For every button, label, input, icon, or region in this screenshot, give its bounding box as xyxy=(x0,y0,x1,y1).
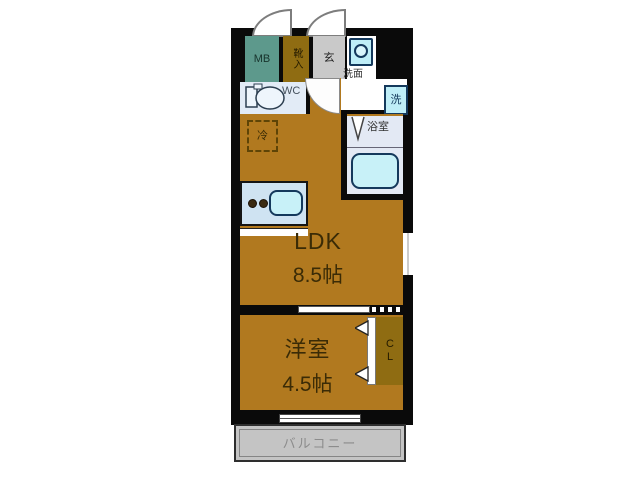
meter-box: MB xyxy=(245,36,279,82)
kitchen-sink-icon xyxy=(269,190,303,216)
balcony-window xyxy=(279,414,361,423)
closet-label: CL xyxy=(384,338,395,364)
shoe-cabinet-label: 靴入 xyxy=(291,48,301,70)
bathroom-label: 浴室 xyxy=(367,122,389,133)
washbasin-icon xyxy=(349,38,373,66)
washroom-label: 洗面 xyxy=(343,70,363,80)
stove-burner-icon xyxy=(248,199,257,208)
bedroom-name: 洋室 xyxy=(250,332,365,364)
closet: CL xyxy=(376,317,403,385)
ldk-name: LDK xyxy=(258,228,378,255)
shoe-cabinet: 靴入 xyxy=(283,36,309,82)
floorplan: MB 靴入 玄 洗面 洗 WC 冷 LDK 8.5帖 xyxy=(0,0,640,480)
wc-label: WC xyxy=(282,86,300,97)
washing-machine-icon: 洗 xyxy=(384,85,408,115)
meter-box-door-swing-icon xyxy=(252,9,292,37)
entrance-label: 玄 xyxy=(324,53,335,64)
bedroom-size: 4.5帖 xyxy=(250,368,365,398)
refrigerator-label: 冷 xyxy=(257,131,268,142)
entrance-door-swing-icon xyxy=(306,9,346,37)
ldk-window xyxy=(403,233,413,275)
closet-door-arrow-icon xyxy=(355,320,369,336)
ldk-size: 8.5帖 xyxy=(258,259,378,289)
balcony: バルコニー xyxy=(234,424,406,462)
bathtub-icon xyxy=(351,153,399,189)
refrigerator-space: 冷 xyxy=(247,120,278,152)
balcony-label: バルコニー xyxy=(283,437,358,450)
ldk-label: LDK 8.5帖 xyxy=(258,228,378,289)
stove-burner-icon xyxy=(259,199,268,208)
closet-door-arrow-icon xyxy=(355,366,369,382)
meter-box-label: MB xyxy=(254,54,271,65)
bathroom-folding-door-icon xyxy=(349,116,369,142)
washing-machine-label: 洗 xyxy=(391,95,402,106)
bedroom-label: 洋室 4.5帖 xyxy=(250,332,365,398)
wc-room: WC xyxy=(240,82,306,114)
bathroom-wall xyxy=(341,194,403,200)
bathroom: 浴室 xyxy=(347,116,403,194)
kitchen-counter xyxy=(240,181,308,226)
entrance: 玄 xyxy=(313,36,345,80)
sliding-door xyxy=(298,306,370,313)
wall-dashes xyxy=(372,307,402,312)
